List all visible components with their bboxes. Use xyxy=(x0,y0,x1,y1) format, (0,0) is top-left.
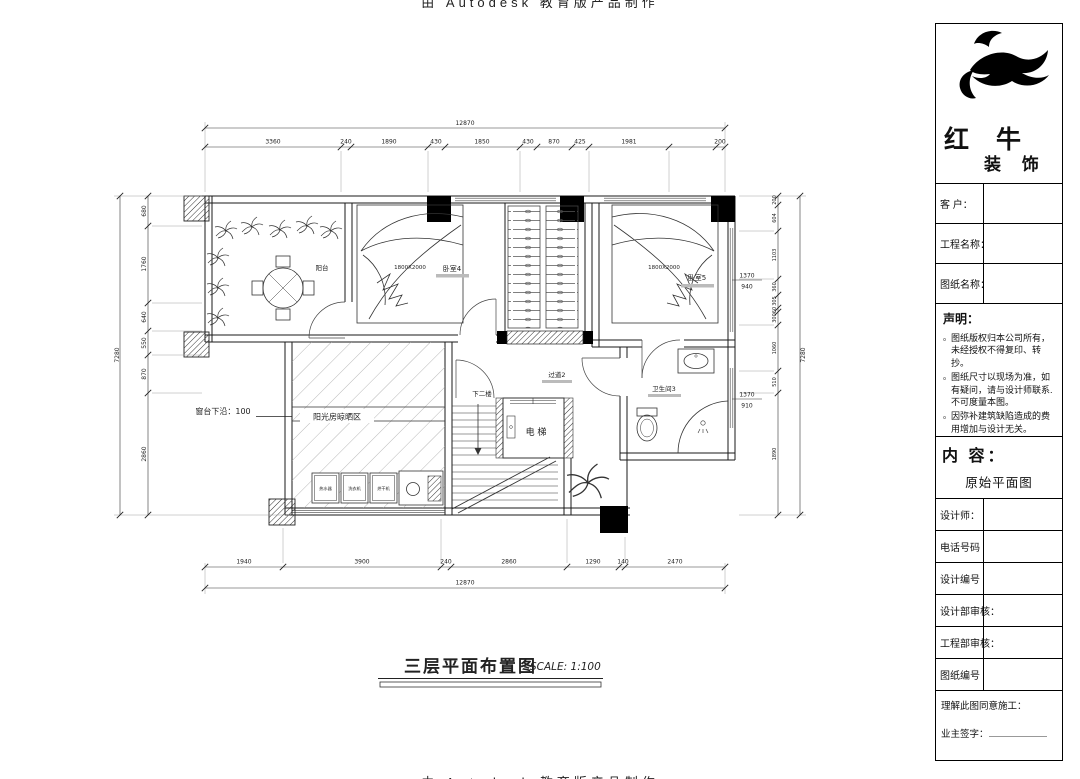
appliance-label: 烘干机 xyxy=(377,485,390,492)
svg-text:240: 240 xyxy=(340,139,352,146)
svg-text:200: 200 xyxy=(714,139,726,146)
signature-line xyxy=(989,726,1047,737)
svg-text:510: 510 xyxy=(772,377,778,387)
svg-text:140: 140 xyxy=(617,559,629,566)
field-customer-value xyxy=(984,184,1062,223)
svg-text:3900: 3900 xyxy=(354,559,369,566)
svg-text:940: 940 xyxy=(741,284,753,291)
bed4-size: 1800X2000 xyxy=(394,265,426,271)
content-heading: 内 容： xyxy=(942,442,1056,466)
svg-text:1060: 1060 xyxy=(772,342,778,355)
statement-heading: 声明： xyxy=(943,310,1057,327)
svg-text:1370: 1370 xyxy=(739,392,754,399)
bed5-size: 1800X2000 xyxy=(648,265,680,271)
field-drawing-value xyxy=(984,264,1062,303)
fine-print xyxy=(681,284,714,288)
svg-text:360: 360 xyxy=(772,282,778,292)
svg-text:910: 910 xyxy=(741,403,753,410)
svg-text:200: 200 xyxy=(772,195,778,205)
wardrobe xyxy=(508,206,578,328)
svg-text:60: 60 xyxy=(772,307,778,313)
svg-text:425: 425 xyxy=(574,139,586,146)
svg-text:604: 604 xyxy=(772,213,778,223)
drawing-title-text: 三层平面布置图 xyxy=(404,656,537,676)
room-label-sunroom: 阳光房晾晒区 xyxy=(313,412,361,422)
room-label-elevator: 电 梯 xyxy=(526,426,547,438)
statement-block: 声明： 。 图纸版权归本公司所有，未经授权不得复印、转抄。 。 图纸尺寸以现场为… xyxy=(936,304,1062,437)
svg-text:1760: 1760 xyxy=(141,256,148,271)
svg-text:2470: 2470 xyxy=(667,559,682,566)
drawing-scale: SCALE: 1:100 xyxy=(530,661,601,673)
row-design-audit: 设计部审核： xyxy=(936,595,1062,627)
dimension-labels: 12870 3360 240 1890 430 1850 430 870 425… xyxy=(114,120,807,587)
field-customer: 客 户： xyxy=(936,184,1062,224)
bathroom-fixtures xyxy=(637,349,728,453)
stairs-note: 下二楼 xyxy=(472,389,492,398)
svg-text:1890: 1890 xyxy=(772,448,778,461)
columns xyxy=(184,196,735,533)
dimension-lines xyxy=(114,122,806,594)
sunroom xyxy=(292,342,445,508)
walls xyxy=(205,196,735,515)
room-label-bedroom4: 卧室4 xyxy=(443,264,462,273)
dim-total-left: 7280 xyxy=(114,347,121,362)
svg-text:240: 240 xyxy=(440,559,452,566)
svg-text:680: 680 xyxy=(141,205,148,217)
room-label-balcony: 阳台 xyxy=(316,263,329,272)
floor-plan: 12870 3360 240 1890 430 1850 430 870 425… xyxy=(0,0,935,779)
svg-text:305: 305 xyxy=(772,296,778,306)
sill-note: 窗台下沿：100 xyxy=(195,406,250,416)
svg-text:1981: 1981 xyxy=(621,139,636,146)
svg-text:1890: 1890 xyxy=(381,139,396,146)
row-design-no: 设计编号 xyxy=(936,563,1062,595)
dim-total-top: 12870 xyxy=(455,120,474,127)
svg-text:2860: 2860 xyxy=(501,559,516,566)
svg-text:550: 550 xyxy=(141,337,148,349)
appliance-label: 热水器 xyxy=(319,485,332,492)
fine-print xyxy=(542,380,572,383)
signature-block: 理解此图同意施工： 业主签字： xyxy=(936,691,1062,757)
window-mark: 1370 940 1370 910 xyxy=(732,273,762,410)
svg-text:1103: 1103 xyxy=(772,249,778,262)
company-logo-block: 红 牛 装 饰 xyxy=(936,24,1062,184)
room-label-corridor: 过道2 xyxy=(548,370,565,379)
row-drawing-no: 图纸编号 xyxy=(936,659,1062,691)
svg-text:3360: 3360 xyxy=(265,139,280,146)
title-block: 红 牛 装 饰 客 户： 工程名称： 图纸名称： 声明： 。 图纸版权归本公司所… xyxy=(935,23,1063,761)
bull-logo-icon xyxy=(944,26,1054,118)
room-labels: 阳台 卧室4 1800X2000 卧室5 1800X2000 过道2 卫生间3 … xyxy=(195,263,714,492)
toilet-icon xyxy=(637,408,657,441)
signature-owner: 业主签字： xyxy=(941,726,1057,740)
room-label-bedroom5: 卧室5 xyxy=(688,273,706,282)
svg-text:1850: 1850 xyxy=(474,139,489,146)
svg-text:1370: 1370 xyxy=(739,273,754,280)
svg-text:1290: 1290 xyxy=(585,559,600,566)
shower-arc xyxy=(678,401,728,453)
field-project-name: 工程名称： xyxy=(936,224,1062,264)
shower-icon xyxy=(698,421,708,433)
statement-item: 。 图纸版权归本公司所有，未经授权不得复印、转抄。 xyxy=(943,332,1057,369)
dim-total-right: 7280 xyxy=(800,347,807,362)
svg-text:1940: 1940 xyxy=(236,559,251,566)
svg-text:2860: 2860 xyxy=(141,446,148,461)
plant-icon xyxy=(567,464,609,498)
field-drawing-name: 图纸名称： xyxy=(936,264,1062,304)
fine-print xyxy=(648,394,681,397)
dim-total-bottom: 12870 xyxy=(455,580,474,587)
appliance-label: 洗衣机 xyxy=(348,485,361,492)
content-value: 原始平面图 xyxy=(942,472,1056,491)
statement-item: 。 图纸尺寸以现场为准，如有疑问，请与设计师联系.不可度量本图。 xyxy=(943,371,1057,408)
room-label-bathroom: 卫生间3 xyxy=(652,384,676,393)
row-phone: 电话号码 xyxy=(936,531,1062,563)
brand-subname: 装 饰 xyxy=(984,150,1047,175)
dimension-ticks xyxy=(117,125,803,591)
drawing-title: 三层平面布置图 SCALE: 1:100 xyxy=(378,656,603,687)
row-engineering-audit: 工程部审核： xyxy=(936,627,1062,659)
signature-agree: 理解此图同意施工： xyxy=(941,698,1057,712)
svg-text:640: 640 xyxy=(141,311,148,323)
svg-text:300: 300 xyxy=(772,313,778,323)
row-designer: 设计师： xyxy=(936,499,1062,531)
content-block: 内 容： 原始平面图 xyxy=(936,437,1062,499)
svg-text:430: 430 xyxy=(522,139,534,146)
svg-text:870: 870 xyxy=(141,368,148,380)
svg-text:870: 870 xyxy=(548,139,560,146)
svg-text:430: 430 xyxy=(430,139,442,146)
fine-print xyxy=(436,274,469,278)
statement-item: 。 因弥补建筑缺陷造成的费用增加与设计无关。 xyxy=(943,410,1057,435)
field-project-value xyxy=(984,224,1062,263)
